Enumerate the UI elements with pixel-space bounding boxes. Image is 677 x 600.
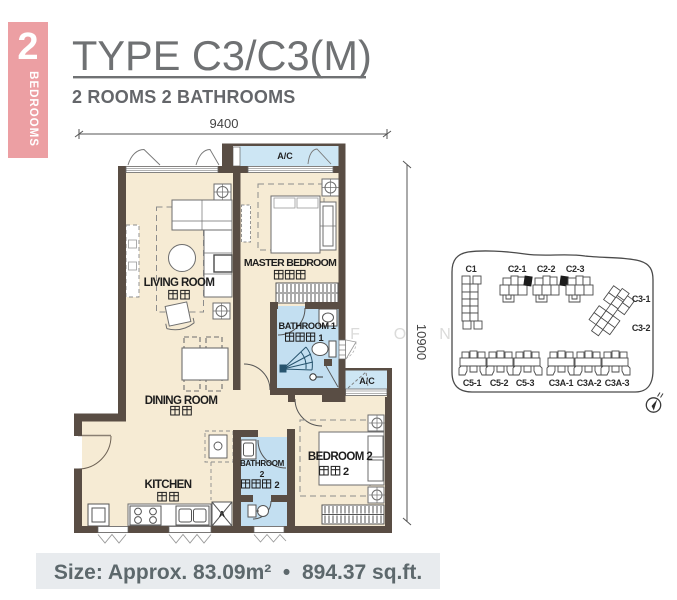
svg-text:KITCHEN: KITCHEN [145,479,192,491]
svg-text:BEDROOMS: BEDROOMS [27,71,39,147]
svg-text:A: A [219,509,225,519]
svg-text:C3A-1: C3A-1 [549,378,574,388]
svg-text:2: 2 [260,469,265,479]
svg-text:2 ROOMS 2 BATHROOMS: 2 ROOMS 2 BATHROOMS [72,87,295,107]
svg-text:F: F [350,326,360,343]
svg-text:O: O [394,326,406,343]
svg-text:2: 2 [274,480,279,491]
svg-text:BATHROOM 1: BATHROOM 1 [278,321,335,331]
svg-text:C2-1: C2-1 [508,264,527,274]
svg-text:C5-1: C5-1 [463,378,482,388]
svg-text:DINING ROOM: DINING ROOM [145,395,218,407]
svg-text:C5-2: C5-2 [490,378,509,388]
svg-text:2: 2 [343,466,349,478]
svg-text:C3A-3: C3A-3 [605,378,630,388]
svg-text:LIVING ROOM: LIVING ROOM [144,277,215,289]
svg-text:C1: C1 [466,264,477,274]
svg-text:C2-2: C2-2 [537,264,556,274]
svg-text:Size: Approx. 83.09m² • 894.: Size: Approx. 83.09m² • 894.37 sq.ft. [54,561,422,584]
svg-text:BATHROOM: BATHROOM [240,459,285,468]
svg-text:C3-1: C3-1 [632,294,651,304]
svg-text:C5-3: C5-3 [516,378,535,388]
svg-text:MASTER BEDROOM: MASTER BEDROOM [244,257,337,269]
svg-text:A/C: A/C [277,151,293,161]
svg-text:C3A-2: C3A-2 [577,378,602,388]
svg-text:TYPE C3/C3(M): TYPE C3/C3(M) [72,32,372,79]
svg-text:C3-2: C3-2 [632,323,651,333]
svg-text:C2-3: C2-3 [566,264,585,274]
svg-text:10900: 10900 [414,324,429,360]
svg-text:BEDROOM 2: BEDROOM 2 [308,451,372,463]
svg-text:N: N [439,326,451,343]
svg-text:2: 2 [17,26,38,68]
svg-text:9400: 9400 [210,116,239,131]
svg-text:1: 1 [318,333,324,344]
